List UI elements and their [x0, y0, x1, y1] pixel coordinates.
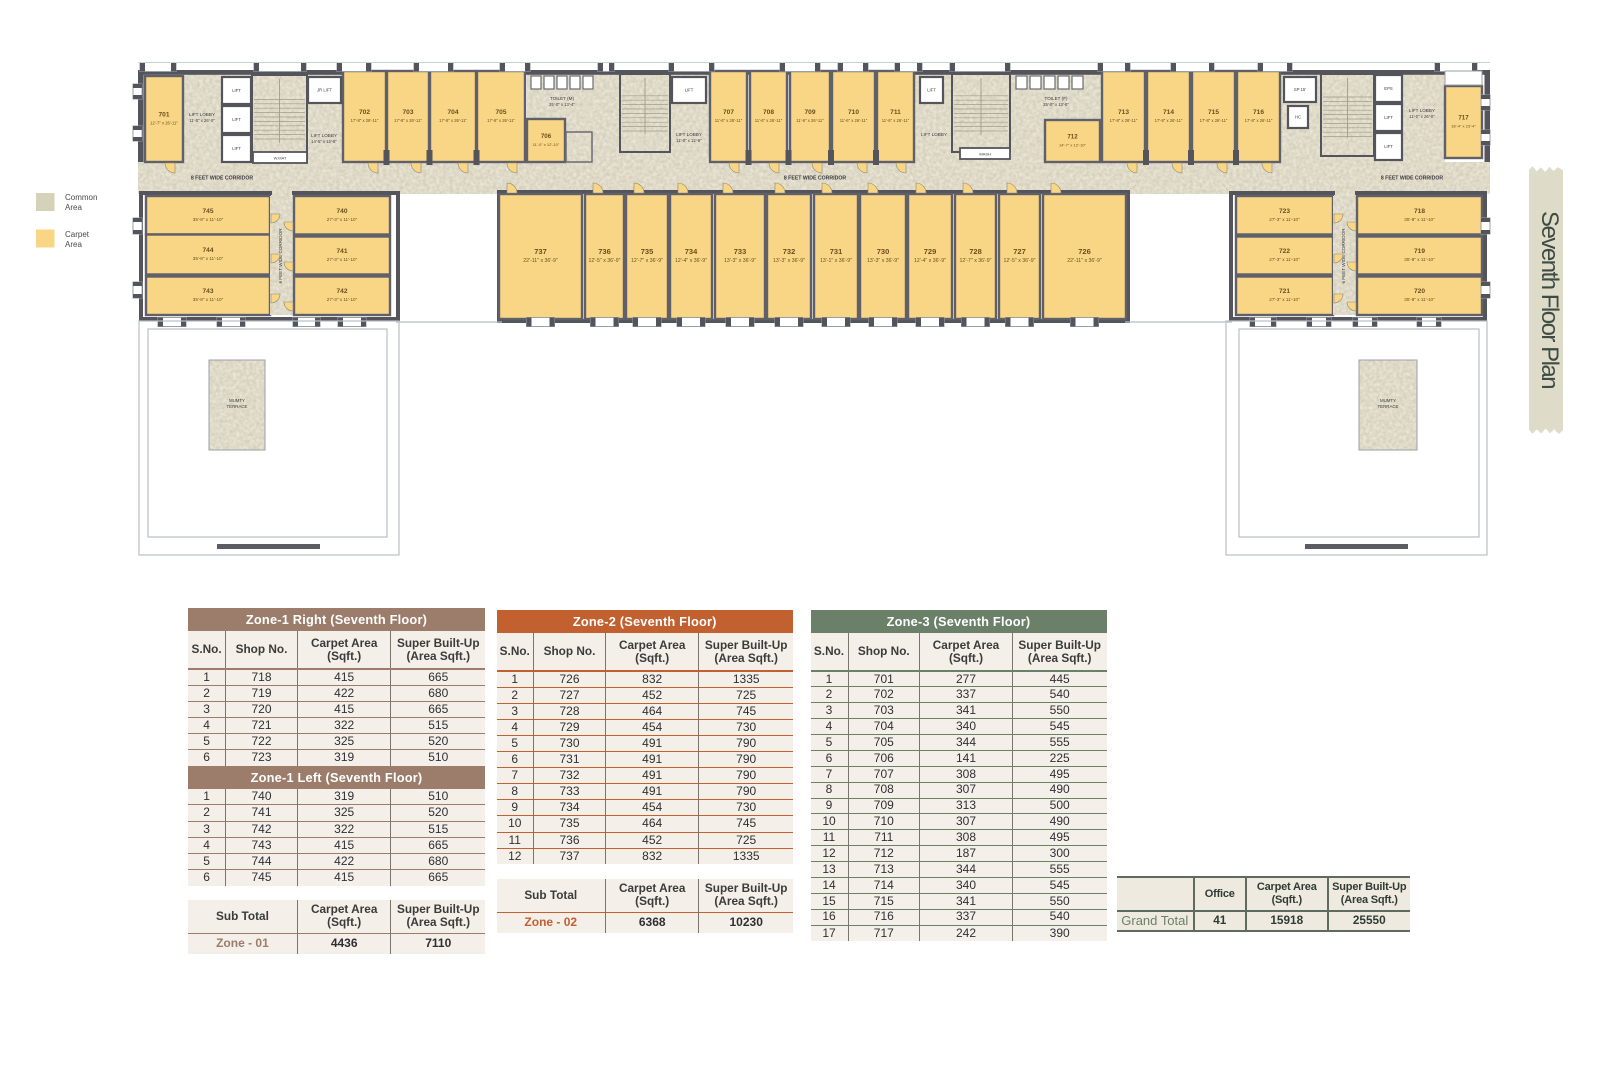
svg-text:18'-4" x 23'-4": 18'-4" x 23'-4"	[1451, 124, 1476, 129]
svg-text:12'-4" x 36'-9": 12'-4" x 36'-9"	[675, 258, 707, 264]
svg-text:702: 702	[359, 109, 370, 116]
svg-text:8 FEET WIDE CORRIDOR: 8 FEET WIDE CORRIDOR	[784, 176, 847, 182]
svg-text:27'-3" x 11'-10": 27'-3" x 11'-10"	[1269, 297, 1300, 302]
svg-text:715: 715	[1208, 109, 1219, 116]
svg-text:740: 740	[336, 208, 347, 215]
svg-text:719: 719	[1414, 248, 1425, 255]
svg-text:25'-0" x 13'-8": 25'-0" x 13'-8"	[1043, 102, 1069, 107]
svg-text:17'-8" x 26'-11": 17'-8" x 26'-11"	[1245, 118, 1273, 123]
svg-text:708: 708	[763, 109, 774, 116]
svg-text:LIFT: LIFT	[232, 146, 241, 151]
svg-text:35'-8" x 11'-10": 35'-8" x 11'-10"	[193, 297, 224, 302]
svg-text:704: 704	[447, 109, 458, 116]
svg-text:713: 713	[1118, 109, 1129, 116]
svg-text:SP 15': SP 15'	[1294, 87, 1306, 92]
svg-text:12'-7" x 36'-9": 12'-7" x 36'-9"	[960, 258, 992, 264]
svg-text:35'-8" x 11'-10": 35'-8" x 11'-10"	[193, 217, 224, 222]
svg-text:12'-4" x 36'-9": 12'-4" x 36'-9"	[914, 258, 946, 264]
svg-text:11'-6" x 26'-11": 11'-6" x 26'-11"	[715, 118, 743, 123]
svg-text:11'-0" x 26'-0": 11'-0" x 26'-0"	[1409, 114, 1435, 119]
svg-text:706: 706	[541, 133, 552, 140]
svg-text:735: 735	[641, 247, 654, 256]
svg-text:27'-3" x 11'-10": 27'-3" x 11'-10"	[1269, 257, 1300, 262]
svg-text:729: 729	[924, 247, 937, 256]
svg-text:712: 712	[1067, 134, 1078, 141]
svg-text:MUMTY: MUMTY	[1380, 398, 1396, 403]
svg-text:27'-3" x 11'-10": 27'-3" x 11'-10"	[1269, 217, 1300, 222]
svg-text:WASH: WASH	[979, 152, 991, 157]
svg-text:722: 722	[1279, 248, 1290, 255]
svg-text:LIFT LOBBY: LIFT LOBBY	[1409, 108, 1435, 113]
svg-text:35'-8" x 11'-10": 35'-8" x 11'-10"	[1404, 257, 1435, 262]
svg-text:14'-7" x 12'-10": 14'-7" x 12'-10"	[1059, 143, 1086, 148]
svg-text:LIFT: LIFT	[1384, 144, 1393, 149]
svg-text:723: 723	[1279, 208, 1290, 215]
svg-text:17'-8" x 26'-11": 17'-8" x 26'-11"	[487, 118, 515, 123]
svg-text:25'-0" x 13'-4": 25'-0" x 13'-4"	[549, 102, 575, 107]
svg-text:JR LIFT: JR LIFT	[317, 88, 332, 93]
svg-text:27'-3" x 11'-10": 27'-3" x 11'-10"	[327, 257, 358, 262]
svg-text:35'-8" x 11'-10": 35'-8" x 11'-10"	[1404, 297, 1435, 302]
svg-text:726: 726	[1078, 247, 1091, 256]
svg-text:HC: HC	[1295, 115, 1301, 120]
svg-text:701: 701	[158, 112, 169, 119]
svg-text:12'-7" x 26'-11": 12'-7" x 26'-11"	[150, 121, 178, 126]
svg-text:22'-11" x 36'-9": 22'-11" x 36'-9"	[523, 258, 558, 264]
svg-text:TERRACE: TERRACE	[1378, 404, 1399, 409]
svg-text:12'-5" x 36'-9": 12'-5" x 36'-9"	[1004, 258, 1036, 264]
svg-text:705: 705	[495, 109, 506, 116]
svg-text:716: 716	[1253, 109, 1264, 116]
svg-text:11'-0" x 26'-0": 11'-0" x 26'-0"	[189, 118, 215, 123]
svg-text:733: 733	[734, 247, 747, 256]
svg-text:730: 730	[877, 247, 890, 256]
svg-text:LIFT LOBBY: LIFT LOBBY	[921, 132, 947, 137]
svg-text:742: 742	[336, 288, 347, 295]
svg-text:Carpet: Carpet	[65, 230, 90, 239]
svg-text:13'-3" x 36'-9": 13'-3" x 36'-9"	[773, 258, 805, 264]
svg-text:11'-6" x 26'-11": 11'-6" x 26'-11"	[882, 118, 910, 123]
svg-text:LIFT: LIFT	[927, 88, 936, 93]
svg-text:LIFT: LIFT	[685, 88, 694, 93]
svg-text:17'-8" x 26'-11": 17'-8" x 26'-11"	[439, 118, 467, 123]
svg-text:720: 720	[1414, 288, 1425, 295]
svg-text:27'-3" x 11'-10": 27'-3" x 11'-10"	[327, 217, 358, 222]
svg-text:13'-3" x 36'-9": 13'-3" x 36'-9"	[867, 258, 899, 264]
svg-text:736: 736	[598, 247, 611, 256]
svg-text:711: 711	[890, 109, 901, 116]
svg-text:LIFT: LIFT	[1384, 115, 1393, 120]
svg-text:11'-6" x 26'-11": 11'-6" x 26'-11"	[840, 118, 868, 123]
svg-text:35'-8" x 11'-10": 35'-8" x 11'-10"	[1404, 217, 1435, 222]
svg-text:LIFT LOBBY: LIFT LOBBY	[189, 112, 215, 117]
svg-text:TOILET (F): TOILET (F)	[1044, 96, 1068, 101]
svg-text:Area: Area	[65, 240, 82, 249]
svg-text:EPS: EPS	[1384, 86, 1393, 91]
svg-text:703: 703	[402, 109, 413, 116]
svg-text:Common: Common	[65, 193, 97, 202]
svg-text:LIFT: LIFT	[232, 88, 241, 93]
svg-text:LIFT LOBBY: LIFT LOBBY	[311, 133, 337, 138]
svg-text:11'-6" x 26'-11": 11'-6" x 26'-11"	[755, 118, 783, 123]
svg-text:Area: Area	[65, 203, 82, 212]
svg-text:17'-8" x 26'-11": 17'-8" x 26'-11"	[1200, 118, 1228, 123]
svg-text:W.MAT: W.MAT	[274, 156, 287, 161]
svg-text:710: 710	[848, 109, 859, 116]
svg-text:714: 714	[1163, 109, 1174, 116]
svg-text:13'-3" x 36'-9": 13'-3" x 36'-9"	[724, 258, 756, 264]
svg-text:732: 732	[783, 247, 796, 256]
svg-text:12'-7" x 36'-9": 12'-7" x 36'-9"	[631, 258, 663, 264]
svg-text:11'-0" x 12'-10": 11'-0" x 12'-10"	[533, 142, 560, 147]
svg-text:17'-8" x 26'-11": 17'-8" x 26'-11"	[394, 118, 422, 123]
svg-text:717: 717	[1458, 115, 1469, 122]
svg-text:728: 728	[969, 247, 982, 256]
svg-text:744: 744	[202, 247, 213, 254]
svg-text:745: 745	[202, 208, 213, 215]
svg-text:11'-6" x 26'-11": 11'-6" x 26'-11"	[796, 118, 824, 123]
svg-text:22'-11" x 36'-9": 22'-11" x 36'-9"	[1067, 258, 1102, 264]
svg-text:27'-3" x 11'-10": 27'-3" x 11'-10"	[327, 297, 358, 302]
svg-text:731: 731	[830, 247, 843, 256]
svg-text:13'-1" x 36'-9": 13'-1" x 36'-9"	[820, 258, 852, 264]
svg-text:TOILET (M): TOILET (M)	[550, 96, 575, 101]
svg-text:TERRACE: TERRACE	[227, 404, 248, 409]
svg-text:721: 721	[1279, 288, 1290, 295]
svg-text:709: 709	[804, 109, 815, 116]
svg-text:17'-8" x 26'-11": 17'-8" x 26'-11"	[351, 118, 379, 123]
svg-text:707: 707	[723, 109, 734, 116]
svg-text:12'-5" x 36'-9": 12'-5" x 36'-9"	[589, 258, 621, 264]
svg-text:734: 734	[685, 247, 698, 256]
svg-text:35'-8" x 11'-10": 35'-8" x 11'-10"	[193, 256, 224, 261]
svg-text:LIFT: LIFT	[232, 117, 241, 122]
svg-text:743: 743	[202, 288, 213, 295]
svg-text:17'-8" x 26'-11": 17'-8" x 26'-11"	[1110, 118, 1138, 123]
svg-text:11'-0" x 12'-6": 11'-0" x 12'-6"	[676, 138, 702, 143]
svg-text:727: 727	[1013, 247, 1026, 256]
svg-text:8 FEET WIDE CORRIDOR: 8 FEET WIDE CORRIDOR	[1381, 176, 1444, 182]
svg-text:8 FEET WIDE CORRIDOR: 8 FEET WIDE CORRIDOR	[191, 176, 254, 182]
svg-text:17'-8" x 26'-11": 17'-8" x 26'-11"	[1155, 118, 1183, 123]
svg-text:741: 741	[336, 248, 347, 255]
svg-text:737: 737	[534, 247, 547, 256]
svg-text:14'-5" x 12'-6": 14'-5" x 12'-6"	[311, 139, 337, 144]
svg-text:718: 718	[1414, 208, 1425, 215]
svg-text:LIFT LOBBY: LIFT LOBBY	[676, 132, 702, 137]
svg-text:MUMTY: MUMTY	[229, 398, 245, 403]
